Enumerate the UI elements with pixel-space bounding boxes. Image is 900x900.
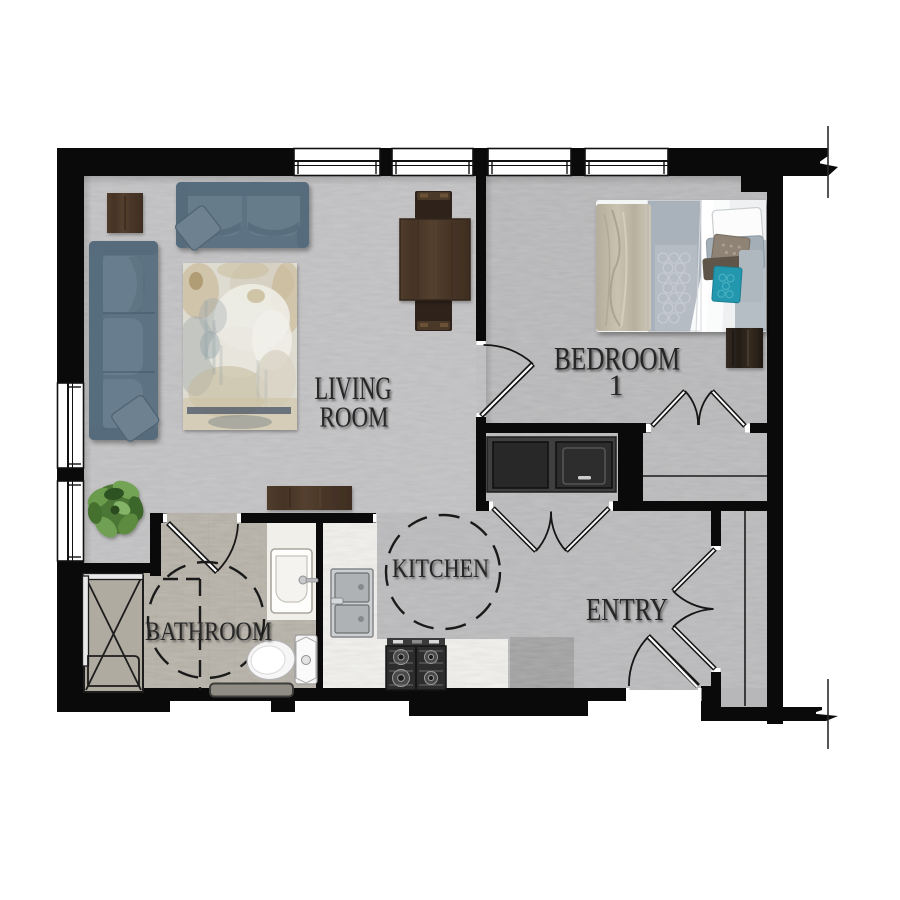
svg-text:1: 1 — [609, 369, 624, 402]
svg-text:BATHROOM: BATHROOM — [145, 616, 272, 646]
svg-text:ENTRY: ENTRY — [586, 592, 668, 627]
svg-text:KITCHEN: KITCHEN — [392, 554, 489, 583]
svg-text:ROOM: ROOM — [320, 403, 389, 434]
